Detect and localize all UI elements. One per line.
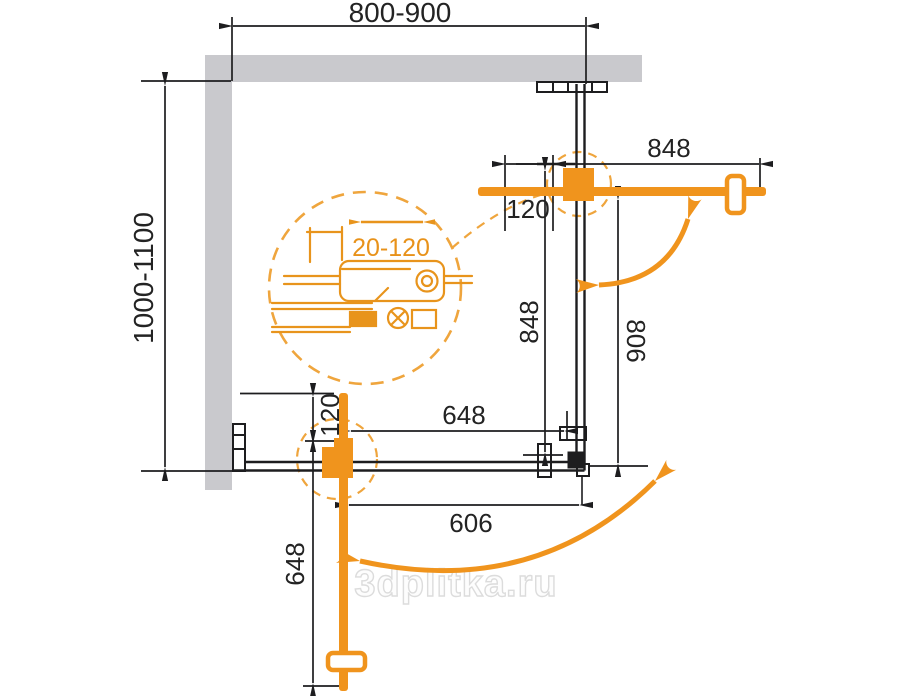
- dim-door-top-offset-label: 120: [506, 194, 549, 224]
- top-pivot-block: [563, 168, 594, 201]
- dim-right-panel-height-label: 848: [514, 300, 544, 343]
- dim-door-top-length-label: 848: [647, 133, 690, 163]
- dim-door-bottom-swing-label: 606: [449, 508, 492, 538]
- dim-adjustment-label: 20-120: [352, 234, 430, 262]
- door-top-leaf: [478, 187, 766, 196]
- wall-top: [205, 55, 642, 82]
- wall-bracket-left: [233, 424, 245, 471]
- dim-adjustment: 20-120: [352, 222, 430, 262]
- dim-door-top-swing-label: 806: [621, 319, 651, 362]
- dim-bottom-panel-width-label: 648: [442, 400, 485, 430]
- door-top-handle: [727, 176, 744, 213]
- bottom-pivot-block: [322, 447, 353, 478]
- dim-door-bottom-length-label: 648: [280, 542, 310, 585]
- door-top-swing-arrow: [599, 219, 688, 285]
- wall-bracket-top: [537, 82, 607, 92]
- glass-panels: [233, 82, 607, 505]
- plan-drawing-svg: 20-120: [0, 0, 909, 696]
- detail-circles: [269, 152, 611, 499]
- door-bottom-swing-arrow: [360, 481, 655, 571]
- dim-left-depth-label: 1000-1100: [128, 212, 159, 344]
- door-bottom-leaf: [339, 393, 348, 691]
- shower-enclosure-drawing: 20-120: [0, 0, 909, 696]
- door-bottom-handle: [328, 653, 365, 670]
- dim-top-width-label: 800-900: [349, 0, 452, 28]
- wall-left: [205, 55, 232, 490]
